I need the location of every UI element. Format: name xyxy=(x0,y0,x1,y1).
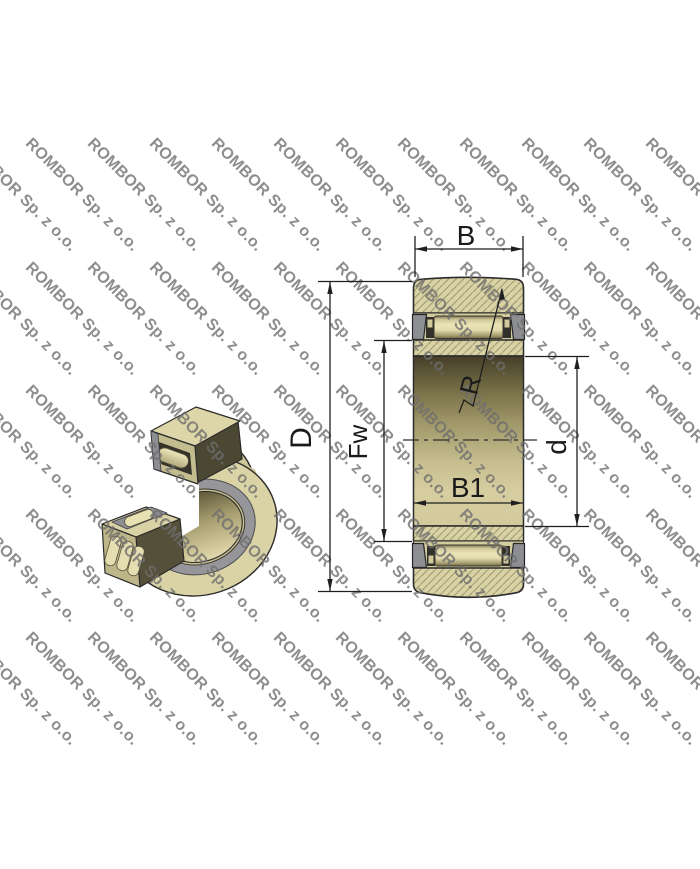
label-b1: B1 xyxy=(451,472,485,503)
dimension-b: B xyxy=(415,220,523,277)
label-d-bore: d xyxy=(541,439,572,455)
radius-leader: R xyxy=(453,288,504,414)
label-b: B xyxy=(457,220,476,251)
label-d-outer: D xyxy=(285,427,318,449)
dimension-b1: B1 xyxy=(414,472,523,506)
label-fw: Fw xyxy=(343,424,373,459)
label-r: R xyxy=(453,372,487,397)
dimension-layer: B D Fw d xyxy=(0,0,700,869)
dimension-d-bore: d xyxy=(525,357,589,527)
bearing-drawing-page: ROMBOR Sp. z o.o.ROMBOR Sp. z o.o.ROMBOR… xyxy=(0,0,700,869)
dimension-fw: Fw xyxy=(343,341,412,542)
